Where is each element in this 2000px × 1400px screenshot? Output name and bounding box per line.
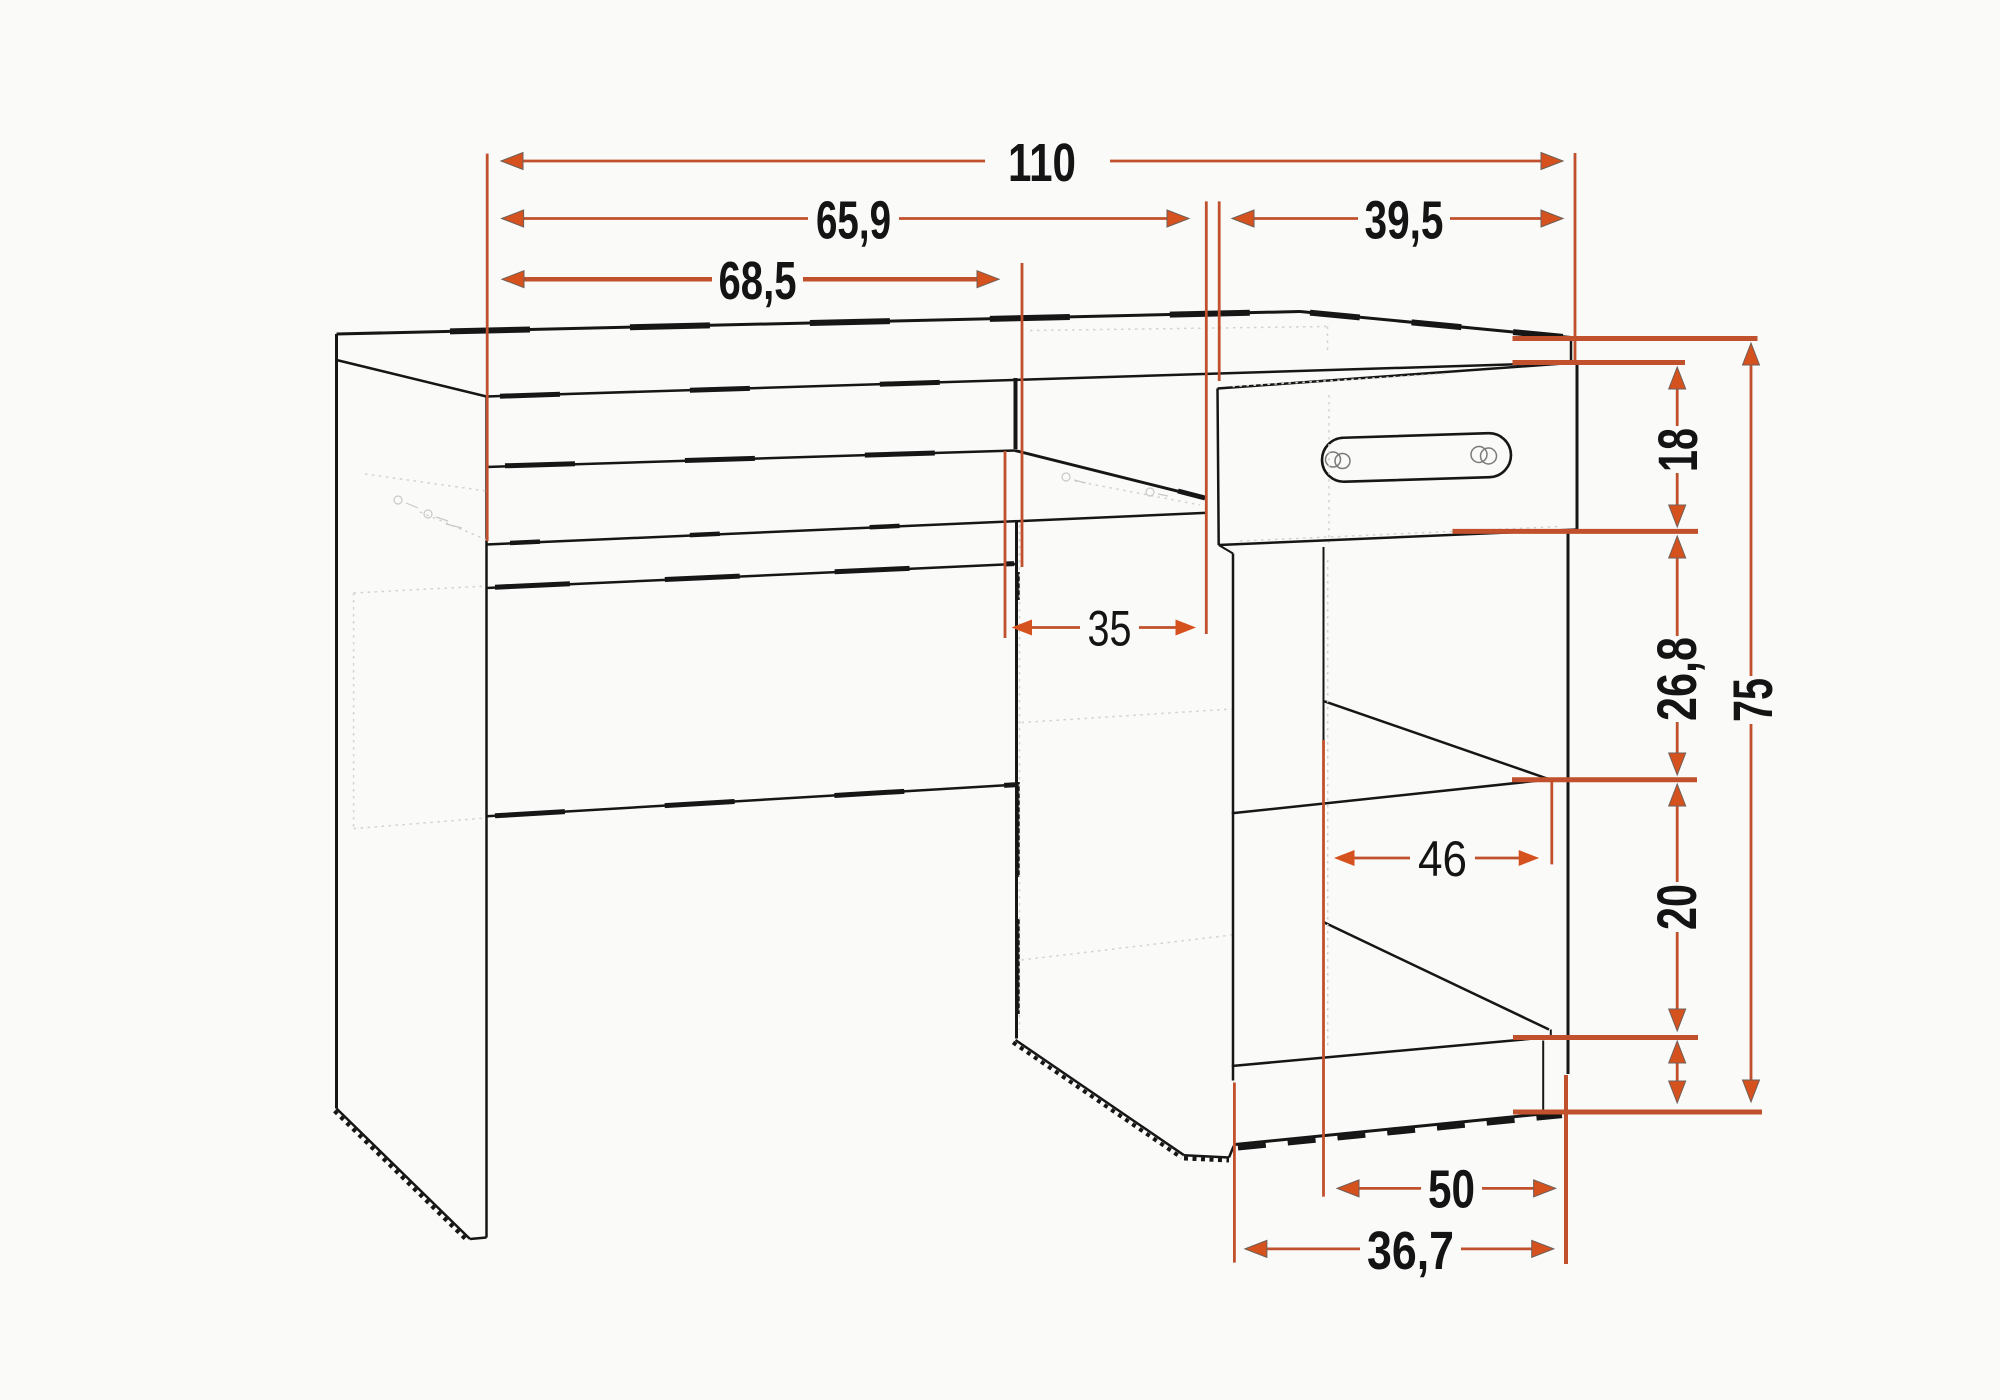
svg-text:18: 18	[1646, 428, 1709, 472]
svg-text:20: 20	[1645, 884, 1708, 930]
svg-text:39,5: 39,5	[1365, 191, 1444, 251]
svg-text:65,9: 65,9	[816, 191, 891, 251]
svg-text:35: 35	[1088, 601, 1132, 657]
svg-text:68,5: 68,5	[719, 251, 797, 311]
svg-text:75: 75	[1721, 678, 1784, 722]
svg-text:36,7: 36,7	[1367, 1221, 1454, 1281]
svg-text:50: 50	[1428, 1159, 1475, 1219]
svg-text:26,8: 26,8	[1645, 637, 1708, 721]
svg-text:46: 46	[1418, 831, 1467, 887]
svg-text:110: 110	[1008, 133, 1076, 193]
